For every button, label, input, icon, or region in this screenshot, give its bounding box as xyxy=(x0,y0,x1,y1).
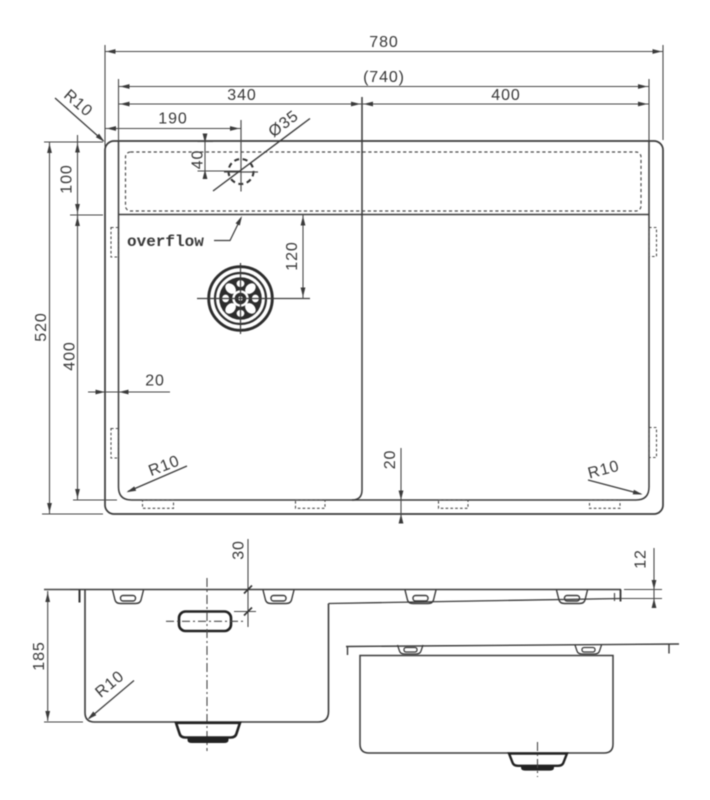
svg-text:520: 520 xyxy=(33,312,50,341)
svg-text:30: 30 xyxy=(231,540,248,560)
svg-text:20: 20 xyxy=(382,450,399,470)
svg-text:R10: R10 xyxy=(586,458,621,483)
svg-text:12: 12 xyxy=(633,549,650,569)
svg-text:120: 120 xyxy=(284,241,301,270)
svg-text:20: 20 xyxy=(145,373,165,390)
svg-text:100: 100 xyxy=(59,164,76,193)
svg-text:(740): (740) xyxy=(363,69,405,86)
svg-text:overflow: overflow xyxy=(127,233,204,251)
svg-text:R10: R10 xyxy=(60,87,95,121)
svg-text:400: 400 xyxy=(62,341,79,370)
svg-text:185: 185 xyxy=(31,641,48,670)
svg-text:400: 400 xyxy=(491,87,520,104)
svg-text:340: 340 xyxy=(227,87,256,104)
svg-text:Ø35: Ø35 xyxy=(266,108,303,141)
svg-text:190: 190 xyxy=(158,111,187,128)
svg-text:780: 780 xyxy=(369,34,398,51)
svg-text:40: 40 xyxy=(190,150,207,170)
svg-text:R10: R10 xyxy=(92,668,127,702)
